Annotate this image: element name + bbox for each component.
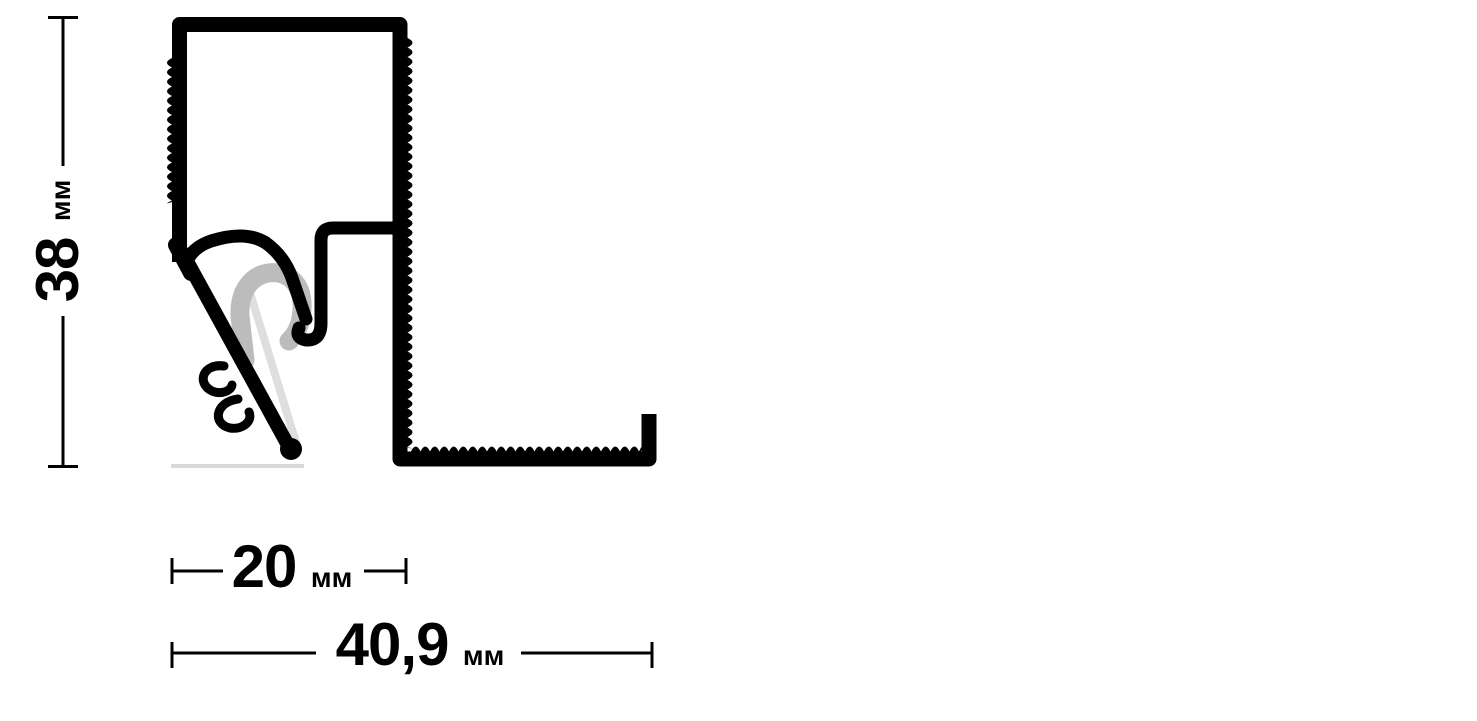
dim-unit: мм — [463, 640, 504, 671]
mounting-shelf — [298, 228, 399, 340]
dim-unit: мм — [45, 180, 76, 221]
dim-value: 40,9 — [336, 611, 449, 678]
serration-right-wall — [408, 38, 413, 449]
profile-diagram: 38 мм 20 мм 40,9 мм — [0, 0, 1477, 721]
dimension-overall-width-label: 40,9 мм — [336, 611, 505, 678]
dim-value: 20 — [232, 533, 297, 600]
svg-text:38 мм: 38 мм — [24, 180, 91, 303]
dim-unit: мм — [311, 562, 352, 593]
serration-bottom-bar — [411, 447, 642, 452]
dim-value: 38 — [24, 238, 91, 303]
dimension-height-label: 38 мм — [24, 180, 91, 303]
profile-body — [176, 25, 649, 460]
leg-foot — [280, 438, 302, 460]
dimension-inner-width-label: 20 мм — [232, 533, 353, 600]
serration-left-wall — [167, 58, 172, 203]
insert-hook-upper — [203, 366, 232, 393]
diagram-canvas: 38 мм 20 мм 40,9 мм — [0, 0, 1477, 721]
insert-hook-lower — [218, 399, 250, 428]
